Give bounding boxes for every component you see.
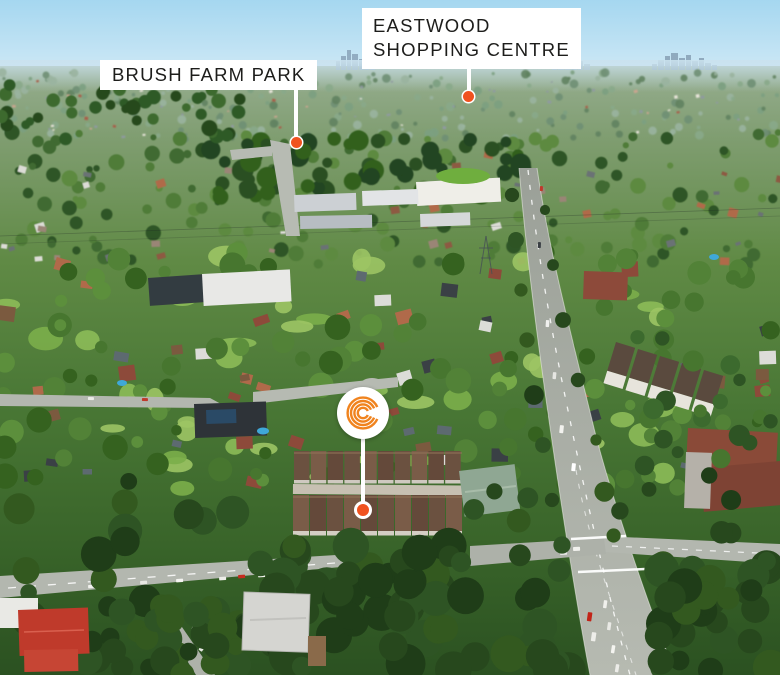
callout-connector-line: [294, 87, 298, 138]
location-pin-dot-eastwood: [463, 91, 474, 102]
callout-connector-line: [467, 69, 471, 92]
aerial-photo-background: [0, 0, 780, 675]
location-pin-dot-brush-farm: [291, 137, 302, 148]
callout-text: BRUSH FARM PARK: [112, 63, 305, 87]
callout-eastwood-shopping-centre: EASTWOOD SHOPPING CENTRE: [362, 8, 581, 69]
aerial-photo: EASTWOOD SHOPPING CENTRE BRUSH FARM PARK…: [0, 0, 780, 675]
callout-text: SHOPPING CENTRE: [373, 38, 570, 62]
property-marker: C: [337, 387, 389, 439]
c-logo-icon: [341, 391, 385, 435]
property-marker-dot: [357, 504, 369, 516]
callout-text: EASTWOOD: [373, 14, 570, 38]
property-marker-line: [361, 437, 365, 506]
callout-brush-farm-park: BRUSH FARM PARK: [100, 60, 317, 90]
